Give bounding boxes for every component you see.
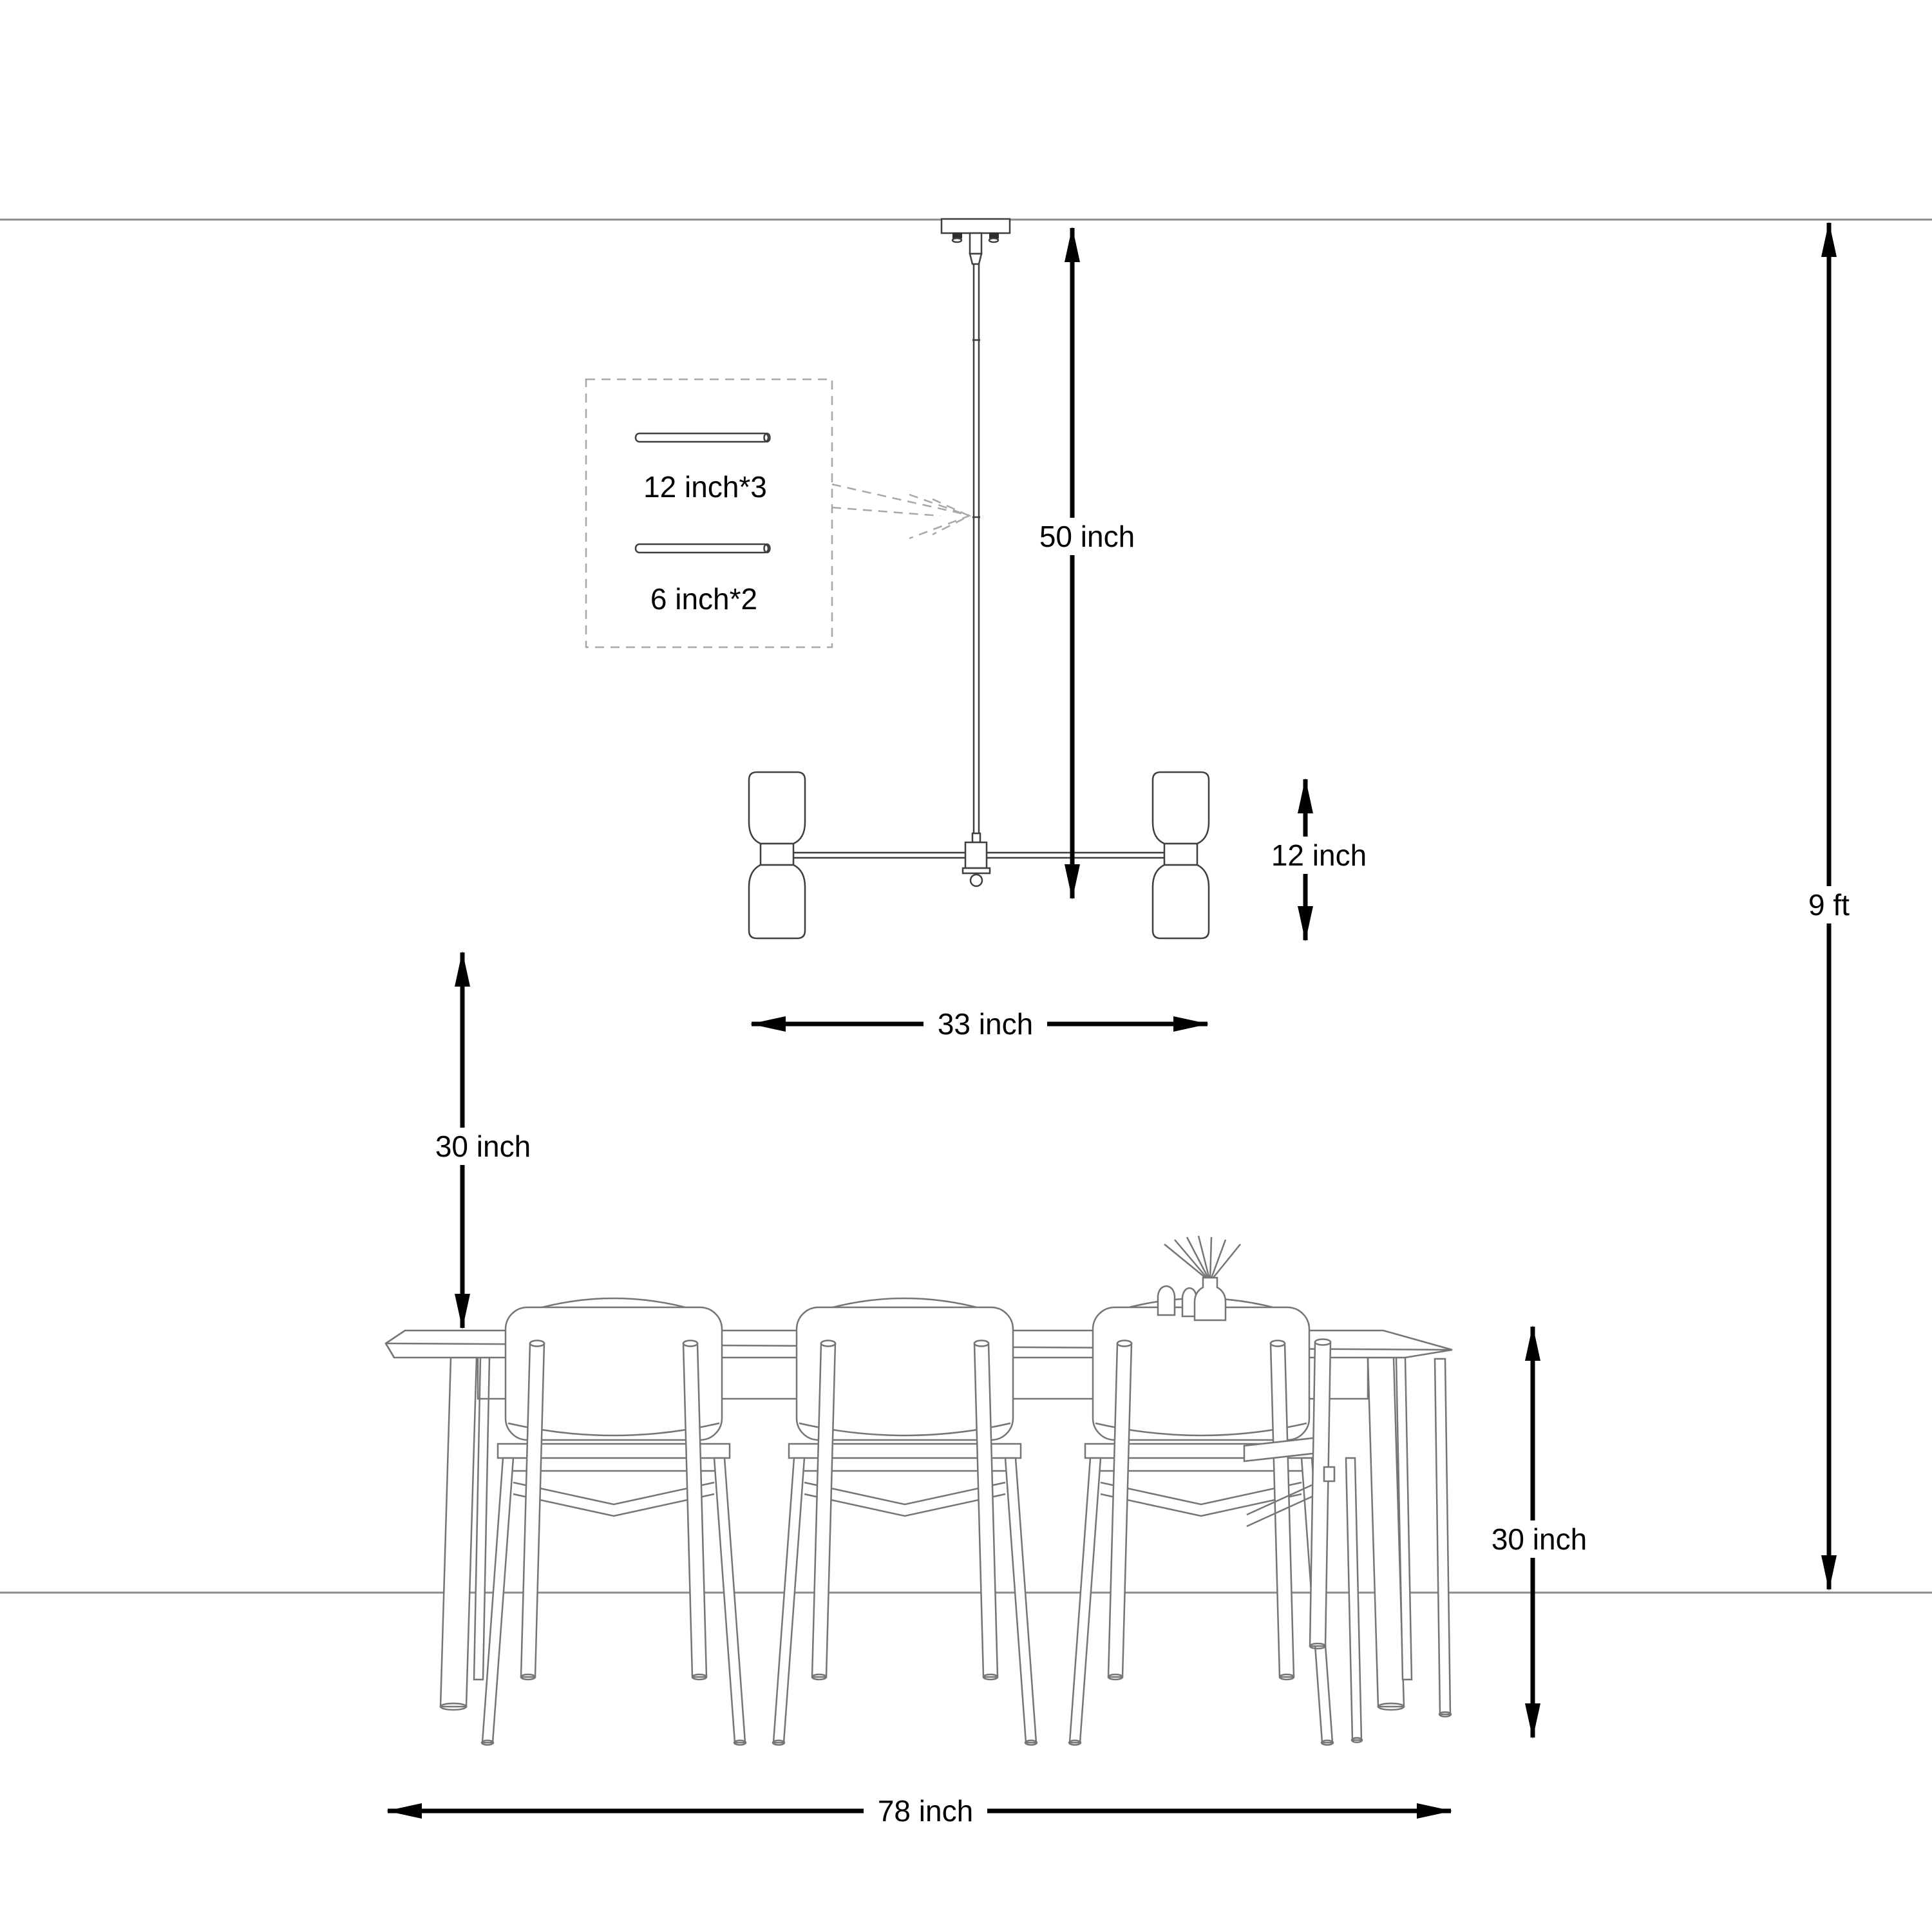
lamp-height-label: 12 inch — [1271, 838, 1367, 872]
chair-1 — [482, 1298, 746, 1745]
fixture-width-label: 33 inch — [938, 1007, 1033, 1041]
rod-short-label: 6 inch*2 — [650, 582, 757, 616]
downrod-stem — [970, 233, 981, 842]
dim-table-length: 78 inch — [386, 1792, 1452, 1830]
lamp-right — [1153, 772, 1209, 938]
chair-3 — [1069, 1298, 1333, 1745]
table-leg-front-left — [440, 1358, 477, 1707]
dim-fixture-to-table: 30 inch — [421, 951, 545, 1329]
chair-2 — [773, 1298, 1037, 1745]
dim-drop-height: 50 inch — [1025, 227, 1149, 900]
table-height-label: 30 inch — [1492, 1522, 1587, 1556]
fixture-to-table-label: 30 inch — [435, 1130, 531, 1163]
rod-icon-long — [636, 433, 770, 442]
spec-diagram-page: 12 inch*3 6 inch*2 50 inch 12 inch 33 — [0, 0, 1932, 1932]
dim-ceiling-height: 9 ft — [1795, 222, 1862, 1591]
chair-4-rear-post — [1310, 1342, 1331, 1646]
drop-height-label: 50 inch — [1039, 520, 1135, 553]
center-hub — [965, 842, 987, 868]
chandelier — [749, 219, 1209, 938]
dim-lamp-height: 12 inch — [1257, 778, 1381, 942]
hub-finial — [971, 875, 982, 886]
dim-fixture-width: 33 inch — [750, 1005, 1209, 1043]
leader-arrow — [832, 484, 969, 538]
ceiling-height-label: 9 ft — [1808, 888, 1850, 922]
ceiling-canopy — [942, 219, 1010, 233]
table-leg-rear-left — [474, 1358, 489, 1680]
table-length-label: 78 inch — [878, 1794, 973, 1828]
rod-icon-short — [636, 544, 770, 553]
lamp-left — [749, 772, 805, 938]
rod-options-box: 12 inch*3 6 inch*2 — [586, 379, 969, 647]
diffuser-bottle — [1195, 1278, 1226, 1320]
dim-table-height: 30 inch — [1477, 1325, 1601, 1739]
chandelier-dining-spec-diagram: 12 inch*3 6 inch*2 50 inch 12 inch 33 — [0, 0, 1932, 1932]
rod-long-label: 12 inch*3 — [643, 470, 767, 504]
